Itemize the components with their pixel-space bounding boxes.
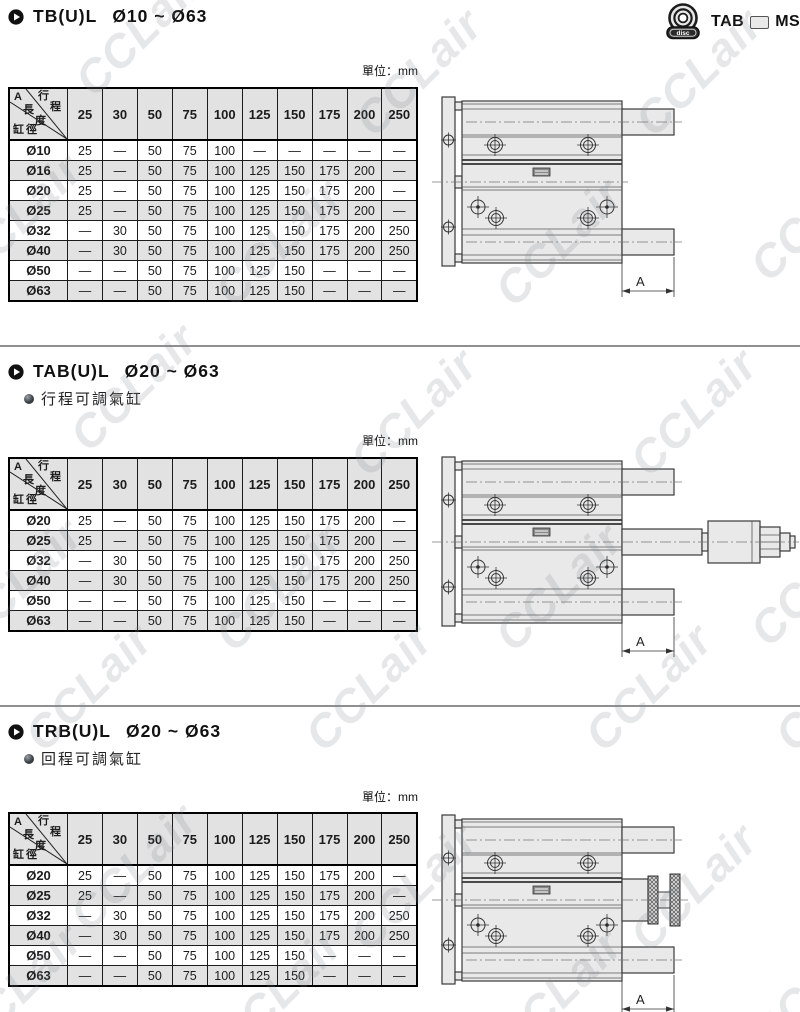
stroke-cell: 150 <box>277 510 312 531</box>
corner-stroke-label: 程 <box>50 102 61 113</box>
column-header: 30 <box>102 88 137 140</box>
column-header: 125 <box>242 813 277 865</box>
stroke-cell: 100 <box>207 261 242 281</box>
model-badge: disc TAB MST <box>662 3 800 41</box>
stroke-cell: 75 <box>172 261 207 281</box>
column-header: 30 <box>102 458 137 510</box>
stroke-cell: 200 <box>347 551 382 571</box>
stroke-cell: — <box>347 946 382 966</box>
stroke-cell: 75 <box>172 611 207 632</box>
table-row: Ø40—305075100125150175200250 <box>9 571 417 591</box>
table-row: Ø40—305075100125150175200250 <box>9 241 417 261</box>
table-row: Ø2025—5075100125150175200— <box>9 510 417 531</box>
corner-stroke-label: 行 <box>38 816 49 827</box>
stroke-cell: 200 <box>347 161 382 181</box>
column-header: 100 <box>207 458 242 510</box>
stroke-cell: 150 <box>277 571 312 591</box>
stroke-cell: — <box>312 611 347 632</box>
stroke-cell: — <box>382 946 417 966</box>
bore-cell: Ø20 <box>9 865 68 886</box>
stroke-cell: 30 <box>102 926 137 946</box>
port-marker <box>533 528 550 536</box>
stroke-cell: 175 <box>312 926 347 946</box>
stroke-cell: — <box>68 571 103 591</box>
stroke-cell: 250 <box>382 926 417 946</box>
table-corner-cell: A行程長度缸徑 <box>9 458 68 510</box>
bore-cell: Ø63 <box>9 611 68 632</box>
badge-box-icon <box>750 16 769 29</box>
stroke-cell: 75 <box>172 886 207 906</box>
stroke-cell: 150 <box>277 261 312 281</box>
stroke-cell: 50 <box>137 886 172 906</box>
stroke-cell: 50 <box>137 510 172 531</box>
stroke-cell: 125 <box>242 531 277 551</box>
column-header: 250 <box>382 813 417 865</box>
corner-length-label: 長 <box>23 830 34 841</box>
table-row: Ø50——5075100125150——— <box>9 261 417 281</box>
stroke-cell: — <box>382 865 417 886</box>
stroke-cell: — <box>102 966 137 987</box>
stroke-cell: — <box>102 886 137 906</box>
corner-stroke-label: 程 <box>50 827 61 838</box>
bore-cell: Ø10 <box>9 140 68 161</box>
stroke-cell: 150 <box>277 946 312 966</box>
stroke-cell: 75 <box>172 181 207 201</box>
stroke-cell: 175 <box>312 161 347 181</box>
stroke-cell: 25 <box>68 510 103 531</box>
stroke-cell: — <box>68 261 103 281</box>
stroke-cell: 100 <box>207 221 242 241</box>
play-bullet-icon <box>8 364 24 380</box>
bore-cell: Ø40 <box>9 926 68 946</box>
stroke-cell: 100 <box>207 510 242 531</box>
section-divider <box>0 705 800 707</box>
stroke-cell: 100 <box>207 611 242 632</box>
stroke-cell: 200 <box>347 221 382 241</box>
stroke-cell: 100 <box>207 865 242 886</box>
stroke-table-slot-2: A行程長度缸徑25305075100125150175200250Ø2025—5… <box>8 457 418 632</box>
stroke-cell: 150 <box>277 551 312 571</box>
section2-model: TAB(U)L <box>33 361 110 382</box>
table-row: Ø50——5075100125150——— <box>9 946 417 966</box>
ball-bullet-icon <box>24 754 34 764</box>
stroke-cell: — <box>102 181 137 201</box>
stroke-cell: 30 <box>102 551 137 571</box>
unit-label: 單位：mm <box>8 788 418 805</box>
stroke-cell: — <box>382 531 417 551</box>
stroke-cell: 125 <box>242 261 277 281</box>
stroke-cell: 175 <box>312 201 347 221</box>
table-row: Ø1625—5075100125150175200— <box>9 161 417 181</box>
stroke-cell: 75 <box>172 221 207 241</box>
bore-cell: Ø40 <box>9 241 68 261</box>
column-header: 25 <box>68 813 103 865</box>
stroke-cell: 125 <box>242 201 277 221</box>
stroke-cell: 200 <box>347 201 382 221</box>
stroke-cell: 125 <box>242 161 277 181</box>
bore-cell: Ø32 <box>9 551 68 571</box>
stroke-cell: 50 <box>137 865 172 886</box>
stroke-cell: 75 <box>172 551 207 571</box>
stroke-cell: 25 <box>68 140 103 161</box>
bore-cell: Ø40 <box>9 571 68 591</box>
stroke-cell: 50 <box>137 181 172 201</box>
section3-model: TRB(U)L <box>33 721 111 742</box>
stroke-cell: 150 <box>277 221 312 241</box>
stroke-table: A行程長度缸徑25305075100125150175200250Ø2025—5… <box>8 812 418 987</box>
column-header: 250 <box>382 88 417 140</box>
stroke-cell: 75 <box>172 140 207 161</box>
dimension-A-label: A <box>636 274 645 289</box>
stroke-cell: 75 <box>172 241 207 261</box>
corner-a-label: A <box>14 817 22 828</box>
stroke-cell: — <box>102 140 137 161</box>
column-header: 75 <box>172 813 207 865</box>
table-corner-cell: A行程長度缸徑 <box>9 813 68 865</box>
dimension-A <box>622 257 674 297</box>
corner-length-label: 長 <box>23 105 34 116</box>
stroke-cell: 100 <box>207 161 242 181</box>
bore-cell: Ø63 <box>9 281 68 302</box>
stroke-cell: — <box>312 946 347 966</box>
stroke-cell: 125 <box>242 966 277 987</box>
stroke-cell: 100 <box>207 926 242 946</box>
stroke-cell: 125 <box>242 281 277 302</box>
dimension-A <box>622 975 674 1012</box>
column-header: 200 <box>347 88 382 140</box>
corner-a-label: A <box>14 92 22 103</box>
stroke-cell: 150 <box>277 161 312 181</box>
watermark-text: CCLair <box>739 912 800 1012</box>
stroke-cell: 125 <box>242 551 277 571</box>
cylinder-drawing-trb: A <box>430 808 695 1012</box>
stroke-cell: 150 <box>277 611 312 632</box>
stroke-cell: 100 <box>207 946 242 966</box>
stroke-cell: — <box>68 281 103 302</box>
bore-cell: Ø50 <box>9 591 68 611</box>
stroke-cell: — <box>68 551 103 571</box>
bore-cell: Ø63 <box>9 966 68 987</box>
stroke-cell: 100 <box>207 966 242 987</box>
play-bullet-icon <box>8 724 24 740</box>
bore-cell: Ø32 <box>9 906 68 926</box>
section1-title: TB(U)L Ø10 ~ Ø63 <box>8 6 207 27</box>
stroke-cell: — <box>102 865 137 886</box>
bore-cell: Ø32 <box>9 221 68 241</box>
stroke-cell: — <box>312 966 347 987</box>
stroke-cell: 150 <box>277 886 312 906</box>
column-header: 75 <box>172 88 207 140</box>
stroke-cell: 125 <box>242 510 277 531</box>
stroke-cell: — <box>347 140 382 161</box>
stroke-cell: 150 <box>277 906 312 926</box>
stroke-cell: — <box>312 261 347 281</box>
stroke-cell: 30 <box>102 906 137 926</box>
section2-title: TAB(U)L Ø20 ~ Ø63 <box>8 361 220 382</box>
stroke-cell: 30 <box>102 571 137 591</box>
stroke-cell: — <box>382 611 417 632</box>
stroke-cell: 75 <box>172 906 207 926</box>
corner-stroke-label: 行 <box>38 91 49 102</box>
stroke-cell: 125 <box>242 591 277 611</box>
stroke-cell: 25 <box>68 181 103 201</box>
stroke-cell: 50 <box>137 140 172 161</box>
bore-cell: Ø50 <box>9 261 68 281</box>
port-marker <box>533 886 550 894</box>
bore-cell: Ø20 <box>9 510 68 531</box>
column-header: 25 <box>68 458 103 510</box>
column-header: 50 <box>137 88 172 140</box>
stroke-cell: 200 <box>347 865 382 886</box>
stroke-cell: 125 <box>242 906 277 926</box>
stroke-cell: 175 <box>312 241 347 261</box>
cylinder-drawing-tab: A <box>430 450 800 670</box>
stroke-cell: 100 <box>207 886 242 906</box>
stroke-cell: — <box>68 966 103 987</box>
watermark-text: CCLair <box>294 612 443 761</box>
port-marker <box>533 168 550 176</box>
stroke-cell: — <box>68 241 103 261</box>
unit-label: 單位：mm <box>8 432 418 449</box>
stroke-cell: — <box>382 886 417 906</box>
dimension-A-label: A <box>636 634 645 649</box>
stroke-cell: — <box>68 591 103 611</box>
column-header: 250 <box>382 458 417 510</box>
table-row: Ø50——5075100125150——— <box>9 591 417 611</box>
stroke-cell: 50 <box>137 221 172 241</box>
stroke-cell: 75 <box>172 281 207 302</box>
stroke-cell: 75 <box>172 161 207 181</box>
column-header: 50 <box>137 813 172 865</box>
stroke-cell: — <box>312 281 347 302</box>
stroke-cell: 125 <box>242 181 277 201</box>
stroke-cell: 75 <box>172 926 207 946</box>
stroke-cell: — <box>102 261 137 281</box>
stroke-cell: 75 <box>172 531 207 551</box>
column-header: 125 <box>242 88 277 140</box>
stroke-cell: 125 <box>242 926 277 946</box>
column-header: 200 <box>347 458 382 510</box>
stroke-table: A行程長度缸徑25305075100125150175200250Ø1025—5… <box>8 87 418 302</box>
stroke-cell: 75 <box>172 946 207 966</box>
ball-bullet-icon <box>24 394 34 404</box>
stroke-cell: 30 <box>102 241 137 261</box>
stroke-cell: 50 <box>137 611 172 632</box>
stroke-cell: — <box>382 181 417 201</box>
stroke-cell: 50 <box>137 201 172 221</box>
stroke-cell: 175 <box>312 510 347 531</box>
stroke-cell: — <box>347 966 382 987</box>
column-header: 150 <box>277 88 312 140</box>
column-header: 100 <box>207 88 242 140</box>
stroke-cell: 25 <box>68 865 103 886</box>
stroke-cell: 150 <box>277 926 312 946</box>
stroke-cell: 50 <box>137 906 172 926</box>
stroke-cell: 150 <box>277 531 312 551</box>
bore-cell: Ø20 <box>9 181 68 201</box>
table-row: Ø2525—5075100125150175200— <box>9 531 417 551</box>
stroke-cell: 150 <box>277 241 312 261</box>
table-row: Ø40—305075100125150175200250 <box>9 926 417 946</box>
stroke-cell: 75 <box>172 865 207 886</box>
watermark-text: CCLair <box>739 142 800 291</box>
stroke-cell: 250 <box>382 221 417 241</box>
stroke-cell: 100 <box>207 531 242 551</box>
stroke-cell: 75 <box>172 966 207 987</box>
stroke-cell: 50 <box>137 946 172 966</box>
stroke-cell: 175 <box>312 221 347 241</box>
bore-cell: Ø16 <box>9 161 68 181</box>
stroke-cell: 125 <box>242 946 277 966</box>
badge-left-text: TAB <box>711 13 744 31</box>
bore-cell: Ø25 <box>9 531 68 551</box>
stroke-cell: 100 <box>207 906 242 926</box>
section2-subtitle: 行程可調氣缸 <box>24 388 143 409</box>
stroke-cell: 50 <box>137 531 172 551</box>
section1-model: TB(U)L <box>33 6 97 27</box>
stroke-cell: — <box>382 140 417 161</box>
stroke-cell: — <box>347 281 382 302</box>
table-row: Ø32—305075100125150175200250 <box>9 551 417 571</box>
stroke-cell: — <box>347 591 382 611</box>
stroke-cell: — <box>102 611 137 632</box>
stroke-cell: — <box>102 281 137 302</box>
stroke-cell: 50 <box>137 281 172 302</box>
stroke-cell: 200 <box>347 510 382 531</box>
stroke-cell: 150 <box>277 865 312 886</box>
stroke-cell: 200 <box>347 926 382 946</box>
stroke-cell: — <box>347 261 382 281</box>
stroke-cell: 125 <box>242 611 277 632</box>
corner-bore-label: 缸徑 <box>13 125 39 136</box>
table-row: Ø32—305075100125150175200250 <box>9 221 417 241</box>
stroke-cell: 150 <box>277 201 312 221</box>
stroke-cell: 125 <box>242 241 277 261</box>
stroke-cell: 175 <box>312 181 347 201</box>
column-header: 175 <box>312 88 347 140</box>
stroke-cell: — <box>68 611 103 632</box>
table-row: Ø2525—5075100125150175200— <box>9 886 417 906</box>
stroke-cell: 50 <box>137 241 172 261</box>
stroke-cell: — <box>277 140 312 161</box>
stroke-cell: — <box>68 221 103 241</box>
stroke-cell: — <box>382 281 417 302</box>
stroke-cell: 30 <box>102 221 137 241</box>
stroke-cell: 250 <box>382 551 417 571</box>
table-row: Ø1025—5075100————— <box>9 140 417 161</box>
section1-range: Ø10 ~ Ø63 <box>112 6 207 27</box>
stroke-cell: 175 <box>312 531 347 551</box>
stroke-cell: 175 <box>312 886 347 906</box>
section3-title: TRB(U)L Ø20 ~ Ø63 <box>8 721 221 742</box>
bore-cell: Ø25 <box>9 201 68 221</box>
stroke-cell: — <box>382 201 417 221</box>
badge-right-text: MST <box>775 13 800 31</box>
stroke-cell: 250 <box>382 571 417 591</box>
stroke-cell: 100 <box>207 551 242 571</box>
stroke-cell: 100 <box>207 281 242 302</box>
corner-a-label: A <box>14 462 22 473</box>
stroke-cell: 50 <box>137 591 172 611</box>
corner-stroke-label: 行 <box>38 461 49 472</box>
stroke-cell: 75 <box>172 510 207 531</box>
stroke-cell: 150 <box>277 591 312 611</box>
stroke-cell: 175 <box>312 551 347 571</box>
stroke-cell: — <box>102 946 137 966</box>
play-bullet-icon <box>8 9 24 25</box>
stroke-table-slot-1: A行程長度缸徑25305075100125150175200250Ø1025—5… <box>8 87 418 302</box>
table-corner-cell: A行程長度缸徑 <box>9 88 68 140</box>
disc-icon: disc <box>662 3 706 41</box>
table-row: Ø63——5075100125150——— <box>9 281 417 302</box>
dimension-A-label: A <box>636 992 645 1007</box>
stroke-cell: 250 <box>382 241 417 261</box>
stroke-cell: 200 <box>347 906 382 926</box>
column-header: 75 <box>172 458 207 510</box>
stroke-cell: — <box>382 591 417 611</box>
stroke-cell: — <box>312 140 347 161</box>
stroke-cell: 150 <box>277 966 312 987</box>
stroke-cell: 75 <box>172 591 207 611</box>
stroke-cell: 25 <box>68 201 103 221</box>
stroke-cell: 25 <box>68 886 103 906</box>
stroke-cell: 125 <box>242 221 277 241</box>
stroke-cell: — <box>68 946 103 966</box>
column-header: 150 <box>277 813 312 865</box>
stroke-cell: 125 <box>242 886 277 906</box>
catalog-page: disc TAB MST TB(U)L Ø10 ~ Ø63 單位：mm A行程長… <box>0 0 800 1012</box>
table-row: Ø63——5075100125150——— <box>9 966 417 987</box>
table-row: Ø2525—5075100125150175200— <box>9 201 417 221</box>
section3-range: Ø20 ~ Ø63 <box>126 721 221 742</box>
table-row: Ø63——5075100125150——— <box>9 611 417 632</box>
stroke-cell: 100 <box>207 241 242 261</box>
stroke-cell: — <box>382 161 417 181</box>
stroke-cell: 175 <box>312 571 347 591</box>
column-header: 175 <box>312 458 347 510</box>
column-header: 175 <box>312 813 347 865</box>
bore-cell: Ø50 <box>9 946 68 966</box>
stroke-cell: 175 <box>312 865 347 886</box>
stroke-cell: — <box>382 966 417 987</box>
cylinder-drawing-tb: A <box>430 90 695 310</box>
stroke-cell: 200 <box>347 886 382 906</box>
table-row: Ø2025—5075100125150175200— <box>9 865 417 886</box>
corner-stroke-label: 程 <box>50 472 61 483</box>
column-header: 125 <box>242 458 277 510</box>
stroke-cell: 50 <box>137 966 172 987</box>
corner-length-label: 長 <box>23 475 34 486</box>
stroke-cell: — <box>102 201 137 221</box>
column-header: 30 <box>102 813 137 865</box>
stroke-cell: 250 <box>382 906 417 926</box>
stroke-cell: 150 <box>277 181 312 201</box>
stroke-cell: 100 <box>207 571 242 591</box>
stroke-cell: — <box>102 591 137 611</box>
stroke-cell: 50 <box>137 551 172 571</box>
stroke-cell: — <box>68 926 103 946</box>
stroke-cell: — <box>382 261 417 281</box>
dimension-A <box>622 617 674 657</box>
stroke-cell: 150 <box>277 281 312 302</box>
stroke-table: A行程長度缸徑25305075100125150175200250Ø2025—5… <box>8 457 418 632</box>
column-header: 25 <box>68 88 103 140</box>
column-header: 50 <box>137 458 172 510</box>
stroke-cell: 175 <box>312 906 347 926</box>
stroke-cell: 50 <box>137 926 172 946</box>
bore-cell: Ø25 <box>9 886 68 906</box>
stroke-cell: 25 <box>68 161 103 181</box>
